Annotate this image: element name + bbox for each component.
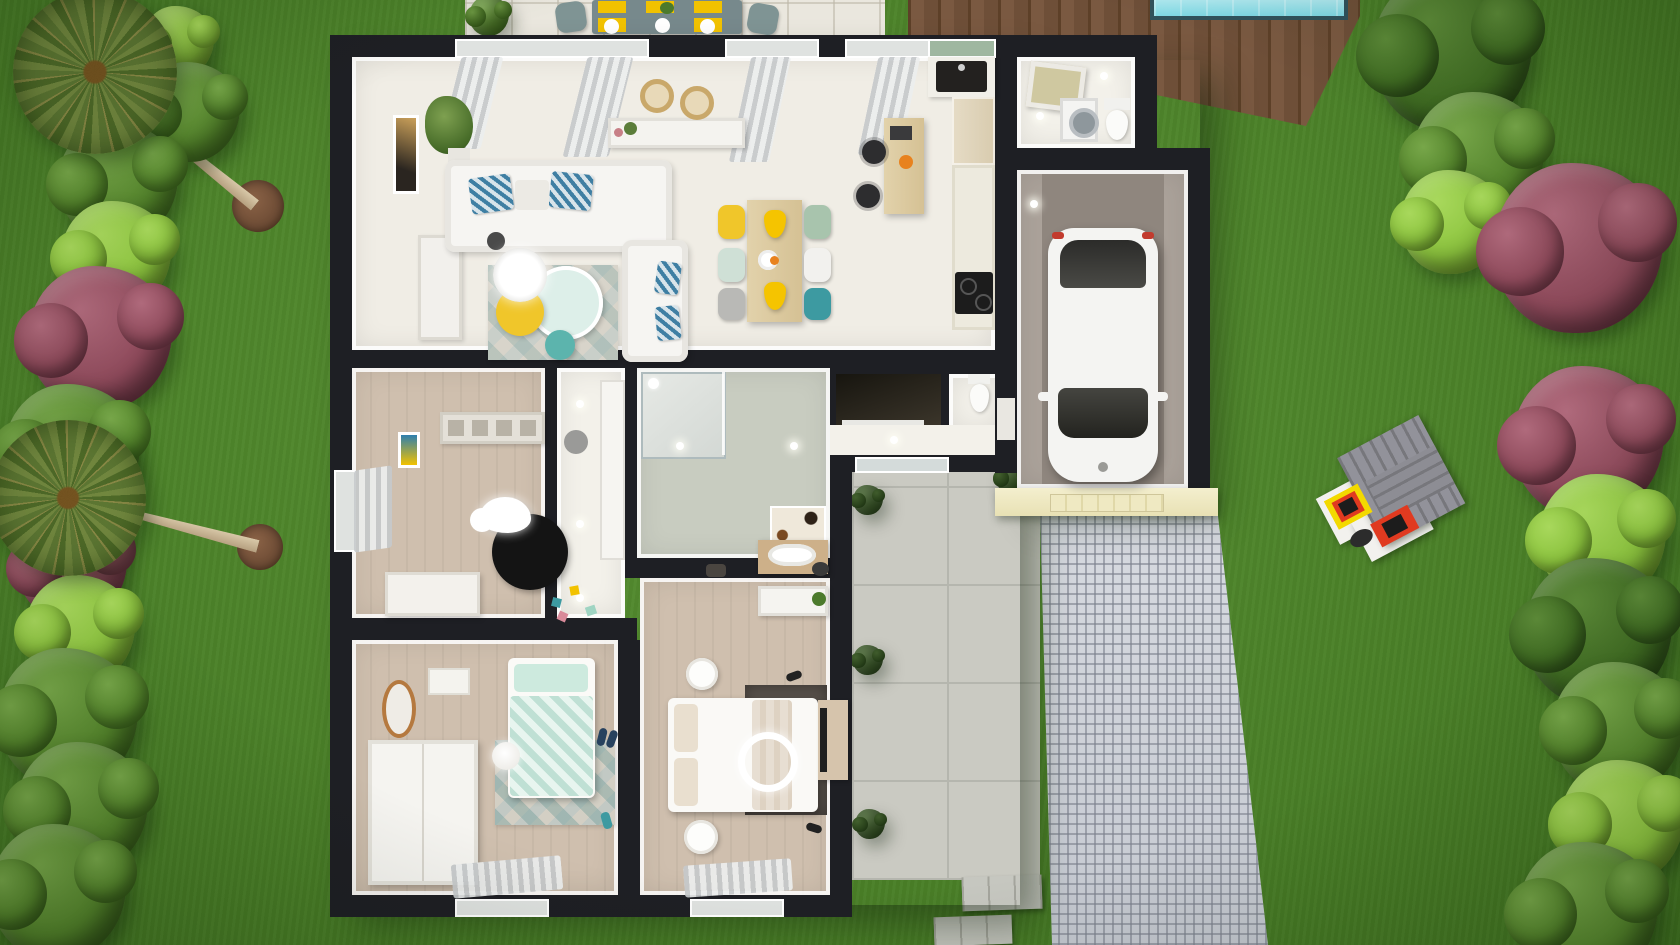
bedside-shelf[interactable]: [428, 668, 470, 695]
dining-chair-gray[interactable]: [718, 288, 745, 320]
ceiling-light: [1100, 72, 1108, 80]
table-lamp[interactable]: [492, 742, 520, 770]
coffee-table-teal[interactable]: [545, 330, 575, 360]
car-taillight: [1052, 232, 1064, 239]
kids-window[interactable]: [334, 470, 356, 552]
rattan-wall-decor: [640, 79, 674, 113]
master-pillow: [674, 704, 698, 752]
sofa-pillow: [468, 173, 515, 214]
ceiling-light: [576, 520, 584, 528]
office-chair[interactable]: [856, 184, 880, 208]
storage-basket: [448, 420, 464, 436]
living-window[interactable]: [455, 39, 649, 58]
wall-garage-north: [1017, 148, 1210, 170]
ceiling-light: [576, 400, 584, 408]
corridor-closet[interactable]: [600, 380, 625, 560]
rattan-wall-decor: [680, 86, 714, 120]
fruit-bowl: [899, 155, 913, 169]
laundry-toilet-tank: [1104, 98, 1130, 110]
office-chair[interactable]: [862, 140, 886, 164]
cloud-crib-lobe: [470, 508, 494, 532]
pouf[interactable]: [564, 430, 588, 454]
sofa-pillow: [548, 171, 594, 211]
wall-garage-east: [1188, 148, 1210, 488]
hall-glass-door[interactable]: [855, 457, 949, 473]
wc-toilet-tank: [968, 374, 990, 384]
dining-chair-mint[interactable]: [718, 248, 745, 282]
kitchen-tall-cabinet[interactable]: [952, 97, 995, 165]
ceiling-light: [790, 442, 798, 450]
potted-plant[interactable]: [425, 96, 473, 154]
nightstand[interactable]: [684, 820, 718, 854]
car-windshield: [1058, 388, 1148, 438]
sofa-pillow: [654, 305, 681, 341]
sofa-pillow: [654, 260, 682, 295]
car-mirror: [1038, 392, 1052, 401]
wall-corridor-east: [625, 368, 637, 568]
room-entry-hall: [830, 425, 1017, 455]
tree-red[interactable]: [1493, 163, 1663, 333]
wall-right-master: [830, 455, 852, 917]
desk-laptop: [890, 126, 912, 140]
fruit: [770, 256, 779, 265]
bath-stool: [706, 564, 726, 577]
living-window[interactable]: [845, 39, 939, 58]
pendant-ring-lamp: [738, 732, 798, 792]
dining-chair-teal[interactable]: [804, 288, 831, 320]
storage-basket: [472, 420, 488, 436]
dining-chair-white[interactable]: [804, 248, 831, 282]
sofa-pillow-white: [515, 180, 549, 210]
burner: [975, 294, 992, 311]
faucet: [958, 64, 965, 71]
car-logo: [1098, 462, 1108, 472]
kitchen-window[interactable]: [928, 39, 996, 58]
ceiling-light: [576, 594, 584, 602]
nightstand[interactable]: [686, 658, 718, 690]
kids-dresser[interactable]: [385, 572, 480, 616]
wall-picture[interactable]: [393, 115, 419, 194]
bath-art-panel: [770, 506, 826, 544]
dining-chair-sage[interactable]: [804, 205, 831, 239]
shower-glass: [722, 372, 725, 455]
master-pillow: [674, 758, 698, 806]
bed-mint-duvet: [510, 696, 593, 796]
car-mirror: [1154, 392, 1168, 401]
tree-green[interactable]: [0, 824, 126, 945]
shower-head: [648, 378, 659, 389]
kids-wall-art: [398, 432, 420, 468]
dining-chair-yellow[interactable]: [718, 205, 745, 239]
storage-basket: [496, 420, 512, 436]
console-plant: [812, 592, 826, 606]
garden-aerial-scene: [0, 0, 1680, 945]
wall-bedroom-master: [618, 640, 640, 895]
ceiling-light: [676, 442, 684, 450]
ceiling-light: [1036, 112, 1044, 120]
bed-mint-pillow: [514, 664, 588, 692]
tree-green[interactable]: [469, 0, 509, 36]
bedroom-window[interactable]: [455, 899, 549, 917]
ceiling-light: [890, 436, 898, 444]
kids-curtain: [354, 465, 392, 552]
copper-mirror[interactable]: [382, 680, 416, 738]
console-plant: [624, 122, 637, 135]
dark-basin: [812, 562, 829, 576]
wardrobe-split: [422, 744, 424, 881]
sofa-2[interactable]: [622, 240, 688, 362]
ottoman[interactable]: [487, 232, 505, 250]
garage-door[interactable]: [1050, 494, 1164, 512]
car-taillight: [1142, 232, 1154, 239]
living-window[interactable]: [725, 39, 819, 58]
bath-sink: [768, 544, 816, 566]
console-plant: [614, 128, 623, 137]
entry-door[interactable]: [997, 398, 1015, 440]
ceiling-light: [1030, 200, 1038, 208]
car-rear-window: [1060, 240, 1146, 288]
tv: [820, 708, 827, 772]
wall-kids-bedroom: [352, 618, 637, 640]
arc-floor-lamp[interactable]: [493, 248, 547, 302]
washer-door: [1069, 108, 1099, 138]
master-window[interactable]: [690, 899, 784, 917]
storage-basket: [520, 420, 536, 436]
toy: [569, 585, 579, 595]
wall-corridor-west: [545, 368, 557, 630]
burner: [960, 278, 977, 295]
